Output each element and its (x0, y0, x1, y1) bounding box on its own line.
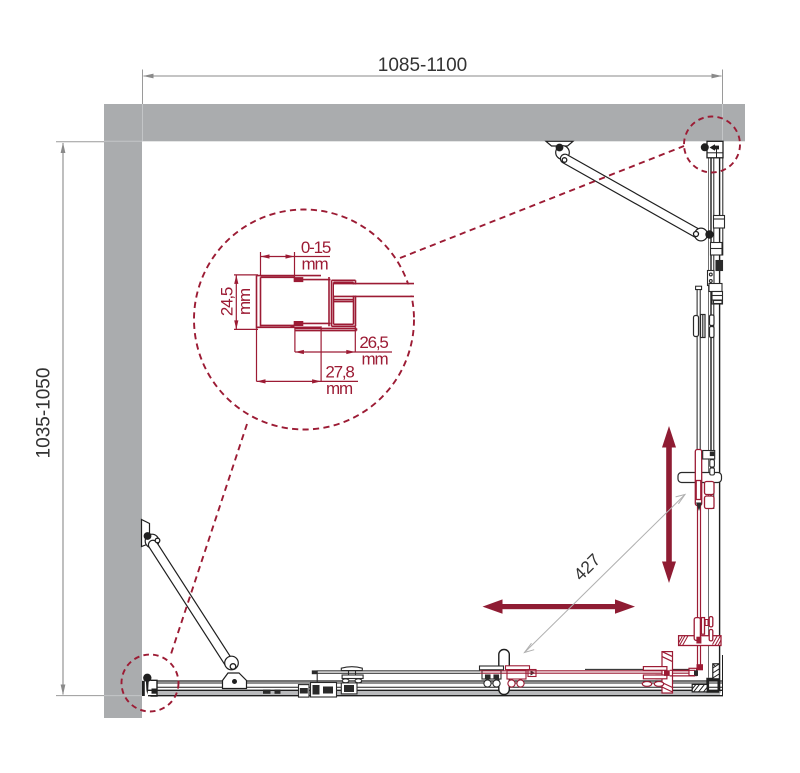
svg-text:mm: mm (326, 379, 353, 398)
svg-text:1035-1050: 1035-1050 (34, 368, 55, 459)
svg-text:mm: mm (235, 288, 254, 315)
svg-text:mm: mm (302, 255, 329, 274)
svg-text:mm: mm (362, 350, 389, 369)
svg-text:24,5: 24,5 (218, 287, 237, 316)
svg-text:1085-1100: 1085-1100 (378, 55, 467, 76)
